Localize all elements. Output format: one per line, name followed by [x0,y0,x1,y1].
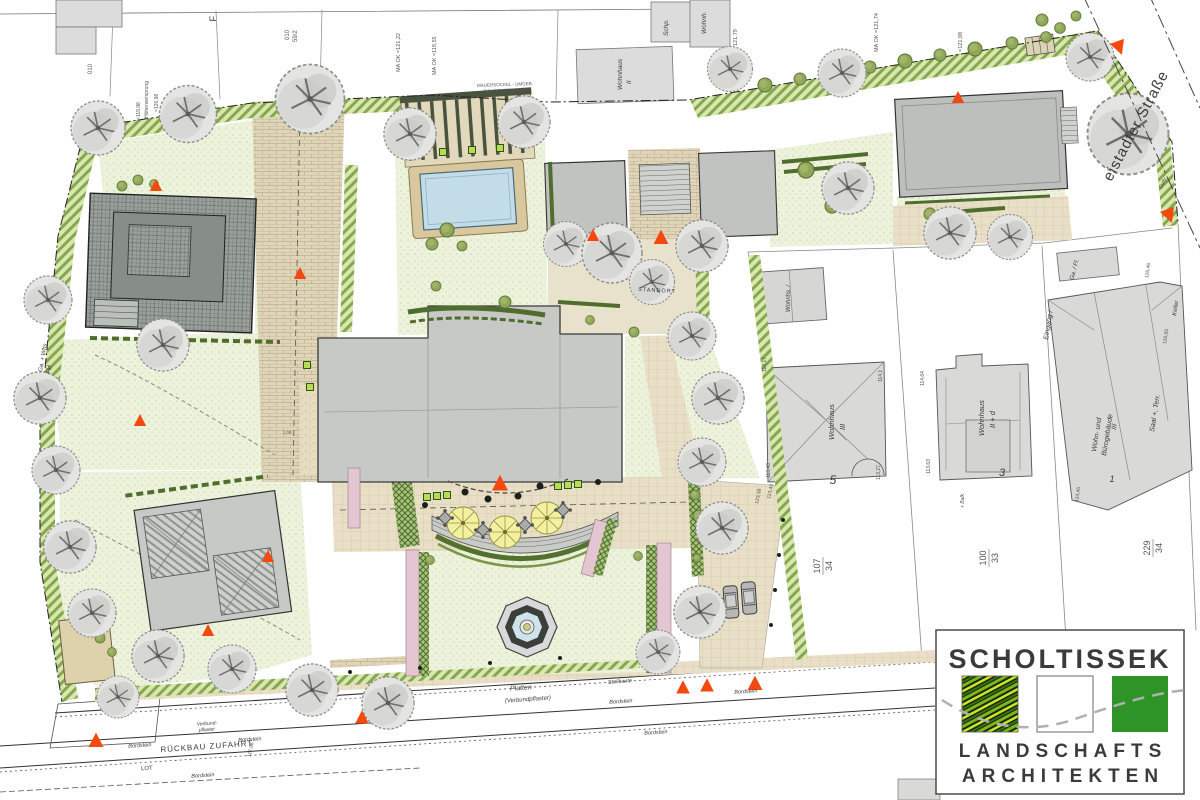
bordstein-label: Bordstein [644,729,668,737]
parcel-number: 107 34 [812,557,834,575]
deciduous-tree-icon [24,276,72,324]
deciduous-tree-icon [636,630,680,674]
house-number: 3 [999,467,1006,479]
northwest-building [86,193,257,333]
fountain [497,597,557,657]
wohnhaus-iii-num-label: III [838,424,847,430]
deciduous-tree-icon [676,220,728,272]
deciduous-tree-icon [988,215,1033,260]
deciduous-tree-icon [14,372,66,424]
wohnhaus-iii-label: Wohnhaus [827,404,836,440]
buero-label: III [1111,423,1119,430]
logo-white-square-icon [1037,676,1093,732]
pflaster-label: pflaster [198,726,216,733]
deciduous-tree-icon [362,677,414,729]
schuppen-building [651,2,691,42]
neighbor-building [898,779,940,800]
wohnhaus-ii-d-label: Wohnhaus [977,400,986,436]
deciduous-tree-icon [32,446,80,494]
buerogebaeude-building [1048,282,1192,510]
parcel-label: 010 [285,29,291,40]
deciduous-tree-icon [678,438,726,486]
parcel-num-top: 229 [1142,540,1152,555]
bordstein-label: Bordstein [191,772,215,780]
neighbor-building [56,27,96,54]
house-number: 5 [830,473,837,487]
ma-ok-label: MA OK =121,74 [874,13,880,52]
elev-label: 121,79 [733,29,739,46]
elev-label: 113,27 [876,465,882,480]
elev-label: =120,98 [154,94,160,112]
deciduous-tree-icon [692,372,744,424]
f-label: F [208,16,218,22]
deciduous-tree-icon [822,162,874,214]
deciduous-tree-icon [630,260,675,305]
deciduous-tree-icon [696,502,748,554]
parcel-label: 010 [88,63,94,74]
deciduous-tree-icon [68,589,116,637]
deciduous-tree-icon [137,319,189,371]
deciduous-tree-icon [668,312,716,360]
wohnhs-small-label: Wohnhs. / [786,284,792,312]
logo-line1: LANDSCHAFTS [959,741,1168,762]
neighbor-building [56,0,122,27]
wohnhaus-ii-num: II [626,80,633,84]
parked-car-icon [741,582,757,615]
elev-label: 116,46 [1144,262,1152,278]
deciduous-tree-icon [498,96,550,148]
pool [420,168,517,230]
elev-label: 114,1 [878,370,884,382]
steilkante-label: Steilkante [608,678,633,686]
elev-label: 114,64 [920,371,926,386]
parcel-number: 229 34 [1142,539,1164,557]
elev-label: =119,98 [136,102,142,120]
umbrella-icon [447,507,479,539]
schuppen-label: Schp. [663,19,670,36]
logo-line2: ARCHITEKTEN [962,766,1164,787]
deciduous-tree-icon [384,108,436,160]
deciduous-tree-icon [208,645,256,693]
main-building [318,306,622,493]
parcel-label: 59/2 [293,30,299,42]
wohnhaus-ii-d-num-label: II + d [988,410,997,428]
garage-fl-building [1057,247,1120,281]
parcel-num-top: 107 [812,558,822,573]
bordstein-label: Bordstein [609,698,633,706]
umbrella-icon [489,516,521,548]
deciduous-tree-icon [132,630,184,682]
deciduous-tree-icon [44,521,96,573]
elev-label: 114,17 [762,357,768,372]
parcel-num-bottom: 33 [990,553,1000,563]
platten-label: Platten [510,684,532,693]
umbrella-icon [531,502,563,534]
wohnh-label: Wohnh. [701,11,708,34]
deciduous-tree-icon [160,86,217,143]
deciduous-tree-icon [818,49,866,97]
wohnhaus-ii-building [576,46,674,103]
ma-ok-label: =121,98 [958,32,964,52]
ma-ok-label: MA OK =121,22 [396,33,402,72]
deciduous-tree-icon [71,101,125,155]
hoehenversprung-label: Höhenversprung [144,81,150,118]
house-number: 1 [1109,474,1114,484]
deciduous-tree-icon [924,207,976,259]
deciduous-tree-icon [286,664,338,716]
neighbor-building [690,0,730,47]
deciduous-tree-icon [276,65,345,134]
site-plan-svg: eistadter Straße Gully RÜCKBAU ZUFAHRT B… [0,0,1200,800]
elev-label: 113,43 [766,463,772,478]
parcel-number: 100 33 [978,549,1000,567]
survey-triangle-icon [700,678,714,691]
lot-label: LOT [141,766,153,773]
verbundpflaster-label: (Verbundpflaster) [505,695,551,704]
logo-block: SCHOLTISSEK LANDSCHAFTS ARCHITEKTEN [936,630,1188,794]
parcel-num-bottom: 34 [1154,543,1164,553]
balkon-label: + Balk. [960,493,966,508]
ma-ok-label: MA OK =119,55 [432,36,438,75]
survey-triangle-icon [676,680,690,693]
logo-title: SCHOLTISSEK [948,644,1171,674]
deciduous-tree-icon [708,47,753,92]
logo-grass-square-icon [962,676,1018,732]
parcel-num-top: 100 [978,550,988,565]
deciduous-tree-icon [544,222,589,267]
northeast-building [895,90,1081,197]
wohnhaus-ii-label: Wohnhaus [617,58,624,90]
elev-label: 113,63 [926,459,932,474]
deciduous-tree-icon [674,586,726,638]
court-stairs [639,163,691,215]
deciduous-tree-icon [1066,33,1114,81]
dim-label: 1,00 [283,430,292,435]
bordstein-label: Bordstein [128,742,152,750]
bordstein-label: Bordstein [734,688,758,696]
parcel-num-bottom: 34 [824,561,834,571]
deciduous-tree-icon [97,676,139,718]
